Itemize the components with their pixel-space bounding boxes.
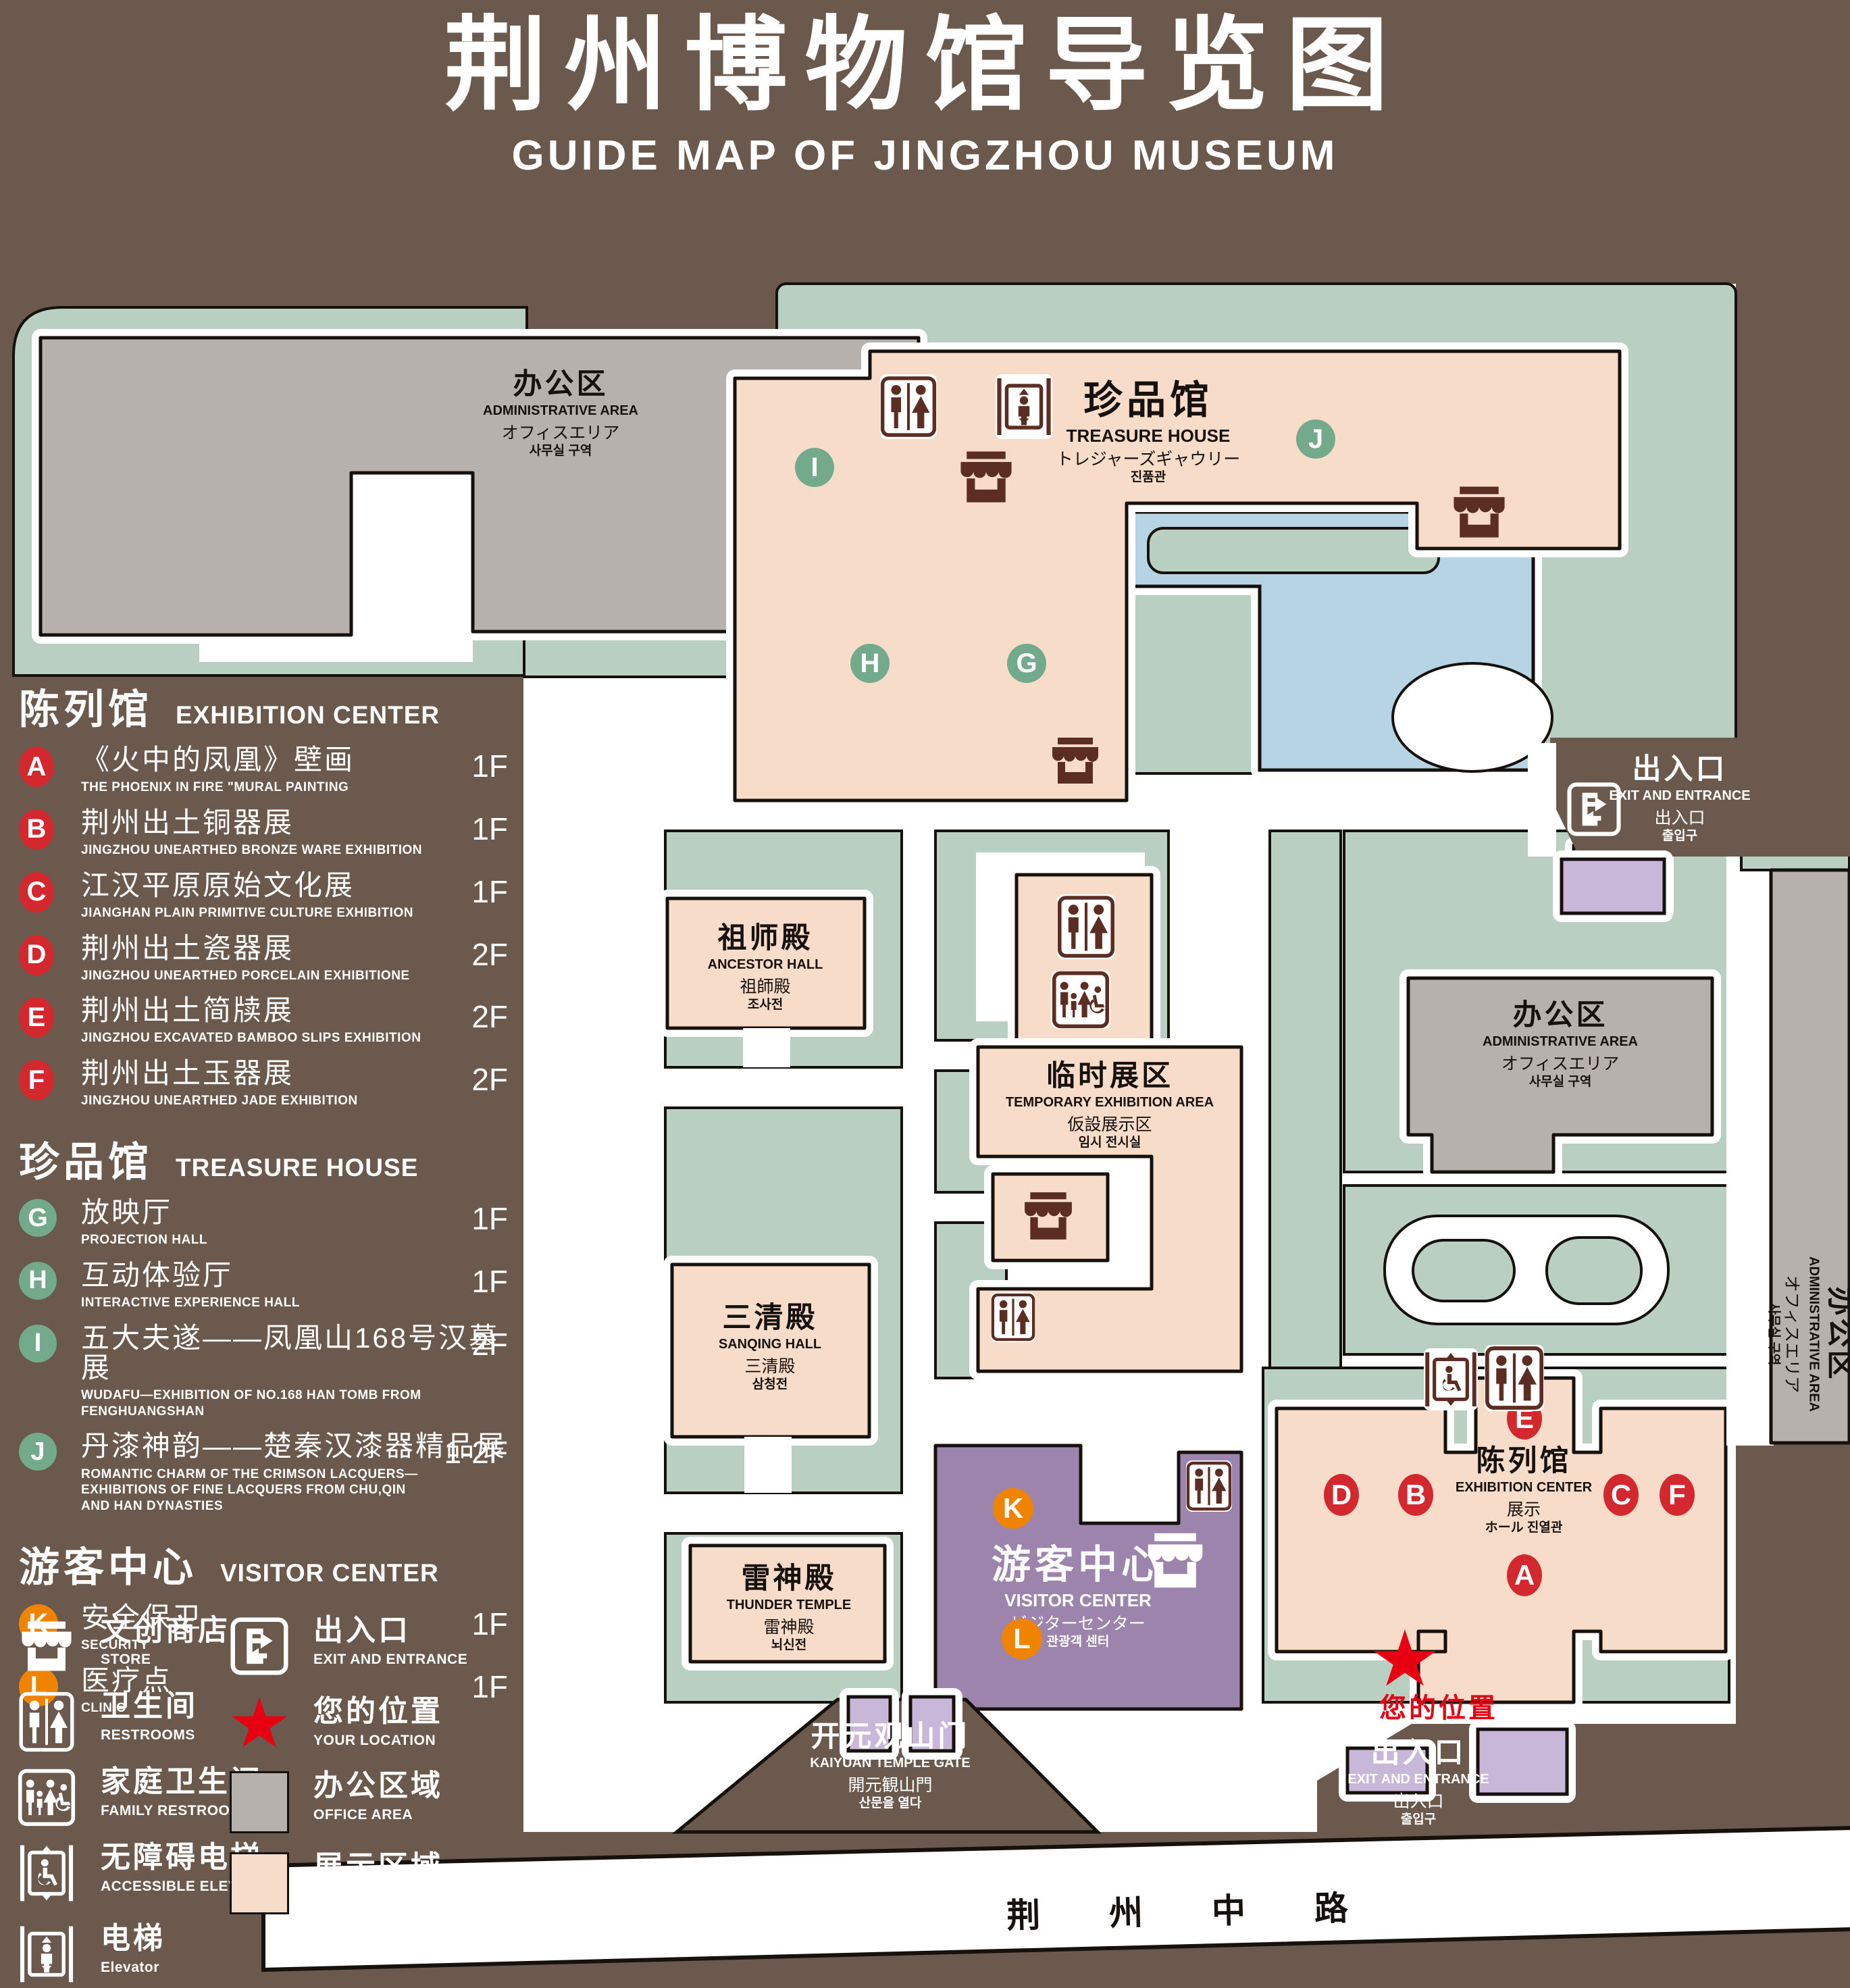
legend-item-floor: 1F <box>471 1606 508 1642</box>
legend-badge-C: C <box>19 872 54 913</box>
map-label-admin-side-line1: 办公区 <box>1824 1256 1850 1412</box>
map-marker-F: F <box>1660 1474 1695 1516</box>
legend-item-en: ROMANTIC CHARM OF THE CRIMSON LACQUERS—E… <box>81 1467 432 1514</box>
map-label-sanqing-line1: 三清殿 <box>719 1302 821 1333</box>
map-label-exit-right-line2: EXIT AND ENTRANCE <box>1609 789 1750 804</box>
legend-item-C: C江汉平原原始文化展JIANGHAN PLAIN PRIMITIVE CULTU… <box>19 871 508 921</box>
map-label-admin-right-line3: オフィスエリア <box>1483 1055 1638 1073</box>
legend-item-en: PROJECTION HALL <box>81 1232 432 1248</box>
legend-item-I: I五大夫遂——凤凰山168号汉墓展WUDAFU—EXHIBITION OF NO… <box>19 1323 508 1420</box>
store-icon <box>18 1616 76 1680</box>
map-label-admin-right-line1: 办公区 <box>1483 1000 1638 1031</box>
map-label-visitor-line1: 游客中心 <box>992 1544 1164 1587</box>
map-label-gate-line1: 开元观山门 <box>810 1721 970 1752</box>
icon-legend-zh: 办公区域 <box>313 1771 443 1801</box>
map-label-admin-right: 办公区ADMINISTRATIVE AREAオフィスエリア사무실 구역 <box>1483 1000 1638 1090</box>
pond-island <box>1148 528 1439 573</box>
accessible-icon <box>1424 1348 1478 1410</box>
legend-item-en: JIANGHAN PLAIN PRIMITIVE CULTURE EXHIBIT… <box>81 905 432 921</box>
legend-item-floor: 2F <box>471 1326 508 1362</box>
restroom-icon <box>1057 894 1115 959</box>
family-icon <box>1051 971 1110 1029</box>
map-label-exit-bottom-line2: EXIT AND ENTRANCE <box>1347 1773 1489 1787</box>
legend-item-zh: 放映厅 <box>81 1198 508 1227</box>
legend-section-header: 游客中心VISITOR CENTER <box>19 1535 508 1594</box>
legend-item-zh: 荆州出土玉器展 <box>81 1059 508 1088</box>
legend-item-A: A《火中的凤凰》壁画THE PHOENIX IN FIRE "MURAL PAI… <box>19 745 508 796</box>
legend-item-en: INTERACTIVE EXPERIENCE HALL <box>81 1295 432 1311</box>
building-exit-bottom-purple-2 <box>1478 1729 1567 1794</box>
map-marker-C: C <box>1603 1474 1639 1516</box>
map-label-ancestor: 祖师殿ANCESTOR HALL祖師殿조사전 <box>708 923 823 1013</box>
guide-map-poster: 荆州博物馆导览图 GUIDE MAP OF JINGZHOU MUSEUM <box>0 0 1850 1978</box>
map-marker-J: J <box>1296 419 1335 459</box>
map-label-admin-top: 办公区ADMINISTRATIVE AREAオフィスエリア사무실 구역 <box>483 369 638 459</box>
legend-item-floor: 1F <box>471 873 508 910</box>
map-label-exit-right: 出入口EXIT AND ENTRANCE出入口출입구 <box>1609 754 1750 844</box>
legend-badge-J: J <box>19 1433 57 1471</box>
legend-section-title-zh: 游客中心 <box>19 1535 197 1594</box>
map-marker-I: I <box>795 448 834 487</box>
restroom-icon <box>880 374 937 439</box>
map-label-exit-bottom-line4: 출입구 <box>1347 1813 1489 1827</box>
legend-badge-E: E <box>19 997 54 1038</box>
restroom-icon <box>991 1292 1035 1342</box>
map-label-thunder-line1: 雷神殿 <box>727 1563 851 1594</box>
map-label-exit-right-line4: 출입구 <box>1609 830 1750 844</box>
legend-item-zh: 《火中的凤凰》壁画 <box>81 745 508 775</box>
icon-legend-row-elevator: 电梯Elevator <box>17 1924 165 1988</box>
map-label-admin-right-line4: 사무실 구역 <box>1483 1075 1638 1090</box>
map-label-admin-side: 办公区ADMINISTRATIVE AREAオフィスエリア사무실 구역 <box>1766 1256 1850 1412</box>
legend-item-floor: 2F <box>471 998 508 1035</box>
icon-legend-en: EXIT AND ENTRANCE <box>313 1652 467 1668</box>
legend-item-floor: 1F <box>471 1668 508 1705</box>
map-label-thunder-line3: 雷神殿 <box>727 1619 851 1637</box>
icon-legend-en: DISPLAY AREA <box>313 1888 443 1904</box>
map-marker-G: G <box>1007 644 1046 683</box>
icon-legend-zh: 电梯 <box>101 1924 165 1954</box>
legend-section-title-zh: 珍品馆 <box>19 1129 153 1188</box>
legend-item-zh: 互动体验厅 <box>81 1260 508 1290</box>
icon-legend-zh: 文创商店 <box>101 1616 230 1646</box>
map-label-treasure-line4: 진품관 <box>1056 471 1241 485</box>
family-icon <box>18 1767 76 1831</box>
map-label-exhibition: 陈列馆EXHIBITION CENTER展示ホール 진열관 <box>1456 1446 1592 1535</box>
map-label-treasure: 珍品馆TREASURE HOUSEトレジャーズギャウリー진품관 <box>1056 380 1241 484</box>
map-marker-B: B <box>1398 1474 1433 1516</box>
map-label-visitor-line2: VISITOR CENTER <box>992 1591 1164 1610</box>
map-label-gate: 开元观山门KAIYUAN TEMPLE GATE開元観山門산문을 열다 <box>810 1721 970 1811</box>
map-label-thunder-line4: 뇌신전 <box>727 1639 851 1653</box>
legend-item-J: J丹漆神韵——楚秦汉漆器精品展ROMANTIC CHARM OF THE CRI… <box>19 1431 508 1514</box>
legend-item-en: WUDAFU—EXHIBITION OF NO.168 HAN TOMB FRO… <box>81 1387 432 1420</box>
store-icon <box>1448 484 1510 540</box>
legend-section-title-en: VISITOR CENTER <box>220 1559 439 1587</box>
map-label-temporary: 临时展区TEMPORARY EXHIBITION AREA仮設展示区임시 전시실 <box>1006 1061 1214 1150</box>
map-label-admin-side-line2: ADMINISTRATIVE AREA <box>1805 1256 1820 1412</box>
legend-item-zh: 五大夫遂——凤凰山168号汉墓展 <box>81 1323 508 1383</box>
icon-legend-row-office-swatch: 办公区域OFFICE AREA <box>230 1771 443 1833</box>
map-label-exit-bottom-line3: 出入口 <box>1347 1793 1489 1811</box>
map-label-treasure-line1: 珍品馆 <box>1056 380 1241 422</box>
legend-item-floor: 2F <box>471 936 508 973</box>
legend-badge-A: A <box>19 746 54 787</box>
icon-legend-en: STORE <box>101 1652 230 1668</box>
elevator-icon <box>996 374 1052 439</box>
icon-legend-en: YOUR LOCATION <box>313 1733 443 1749</box>
map-label-admin-top-line2: ADMINISTRATIVE AREA <box>483 404 638 419</box>
icon-legend-en: OFFICE AREA <box>313 1807 443 1823</box>
map-label-sanqing-line4: 삼청전 <box>719 1378 821 1392</box>
map-label-thunder-line2: THUNDER TEMPLE <box>727 1598 851 1613</box>
store-icon <box>1048 735 1103 786</box>
map-label-exit-bottom: 出入口EXIT AND ENTRANCE出入口출입구 <box>1347 1737 1489 1827</box>
legend-item-floor: 1F <box>471 748 508 784</box>
map-label-ancestor-line4: 조사전 <box>708 998 823 1013</box>
icon-legend-zh: 出入口 <box>313 1616 467 1646</box>
legend-section-title-zh: 陈列馆 <box>19 677 153 736</box>
icon-legend-row-store: 文创商店STORE <box>17 1616 230 1680</box>
icon-legend-row-family: 家庭卫生间FAMILY RESTROOMS <box>17 1767 263 1831</box>
map-label-exit-right-line1: 出入口 <box>1609 754 1750 785</box>
building-exit-right-purple <box>1562 859 1664 913</box>
restroom-icon <box>1186 1460 1232 1512</box>
icon-legend-zh: 卫生间 <box>101 1691 198 1721</box>
map-label-temporary-line1: 临时展区 <box>1006 1061 1214 1092</box>
legend-section-header: 陈列馆EXHIBITION CENTER <box>19 677 508 736</box>
legend-badge-F: F <box>19 1060 54 1100</box>
map-marker-D: D <box>1324 1474 1359 1516</box>
legend-item-D: D荆州出土瓷器展JINGZHOU UNEARTHED PORCELAIN EXH… <box>19 934 508 984</box>
map-label-exit-right-line3: 出入口 <box>1609 809 1750 827</box>
legend-badge-I: I <box>19 1325 57 1362</box>
legend-item-floor: 1F <box>471 811 508 847</box>
legend-section-title-en: TREASURE HOUSE <box>176 1154 418 1182</box>
map-label-admin-side-line3: オフィスエリア <box>1782 1256 1800 1412</box>
icon-legend-en: Elevator <box>101 1960 165 1976</box>
map-label-ancestor-line2: ANCESTOR HALL <box>708 958 823 973</box>
legend-item-zh: 荆州出土简牍展 <box>81 996 508 1025</box>
map-label-ancestor-line3: 祖師殿 <box>708 978 823 996</box>
store-icon <box>1141 1530 1209 1591</box>
legend-item-zh: 荆州出土瓷器展 <box>81 934 508 963</box>
map-label-treasure-line2: TREASURE HOUSE <box>1056 426 1241 445</box>
map-label-sanqing: 三清殿SANQING HALL三清殿삼청전 <box>719 1302 821 1392</box>
your-location-label: 您的位置 <box>1379 1686 1498 1725</box>
display-swatch-icon <box>230 1852 289 1914</box>
legend-section-title-en: EXHIBITION CENTER <box>176 701 440 730</box>
map-label-admin-right-line2: ADMINISTRATIVE AREA <box>1483 1035 1638 1050</box>
legend-item-zh: 江汉平原原始文化展 <box>81 871 508 900</box>
accessible-icon <box>18 1843 76 1907</box>
map-label-temporary-line2: TEMPORARY EXHIBITION AREA <box>1006 1096 1214 1111</box>
restroom-icon <box>1485 1345 1544 1411</box>
map-label-admin-top-line3: オフィスエリア <box>483 424 638 442</box>
map-label-exhibition-line4: ホール 진열관 <box>1456 1521 1592 1535</box>
legend-item-en: JINGZHOU UNEARTHED BRONZE WARE EXHIBITIO… <box>81 842 432 859</box>
legend-badge-D: D <box>19 935 54 975</box>
map-label-gate-line2: KAIYUAN TEMPLE GATE <box>810 1756 970 1771</box>
legend-item-B: B荆州出土铜器展JINGZHOU UNEARTHED BRONZE WARE E… <box>19 808 508 859</box>
legend-section-header: 珍品馆TREASURE HOUSE <box>19 1129 508 1188</box>
legend-item-en: JINGZHOU UNEARTHED JADE EXHIBITION <box>81 1093 432 1109</box>
map-label-exhibition-line1: 陈列馆 <box>1456 1446 1592 1477</box>
legend-item-H: H互动体验厅INTERACTIVE EXPERIENCE HALL1F <box>19 1260 508 1311</box>
legend-item-en: THE PHOENIX IN FIRE "MURAL PAINTING <box>81 780 432 796</box>
legend-item-F: F荆州出土玉器展JINGZHOU UNEARTHED JADE EXHIBITI… <box>19 1059 508 1109</box>
office-swatch-icon <box>230 1771 289 1833</box>
map-label-sanqing-line3: 三清殿 <box>719 1358 821 1376</box>
map-marker-L: L <box>1002 1619 1042 1659</box>
legend-item-floor: 2F <box>471 1061 508 1098</box>
legend-item-zh: 荆州出土铜器展 <box>81 808 508 838</box>
map-label-temporary-line4: 임시 전시실 <box>1006 1136 1214 1150</box>
legend-badge-B: B <box>19 809 54 850</box>
map-marker-A: A <box>1507 1554 1542 1596</box>
map-label-thunder: 雷神殿THUNDER TEMPLE雷神殿뇌신전 <box>727 1563 851 1653</box>
map-marker-K: K <box>993 1488 1033 1529</box>
legend-item-floor: 1F <box>471 1263 508 1300</box>
map-label-treasure-line3: トレジャーズギャウリー <box>1056 451 1241 469</box>
store-icon <box>955 449 1017 505</box>
exit-icon <box>1567 780 1621 838</box>
star-icon <box>230 1697 288 1752</box>
restroom-icon <box>18 1691 76 1756</box>
map-label-exit-bottom-line1: 出入口 <box>1347 1737 1489 1768</box>
map-label-exhibition-line2: EXHIBITION CENTER <box>1456 1481 1592 1496</box>
legend-item-E: E荆州出土简牍展JINGZHOU EXCAVATED BAMBOO SLIPS … <box>19 996 508 1046</box>
map-label-temporary-line3: 仮設展示区 <box>1006 1116 1214 1134</box>
icon-legend-en: RESTROOMS <box>101 1727 198 1743</box>
icon-legend-row-star: 您的位置YOUR LOCATION <box>230 1697 443 1752</box>
legend-item-floor: 1F <box>471 1200 508 1237</box>
icon-legend-zh: 展示区域 <box>313 1852 443 1882</box>
map-label-gate-line3: 開元観山門 <box>810 1777 970 1795</box>
map-label-admin-side-line4: 사무실 구역 <box>1766 1256 1780 1412</box>
map-label-ancestor-line1: 祖师殿 <box>708 923 823 954</box>
exit-icon <box>230 1616 288 1680</box>
legend-panel: 陈列馆EXHIBITION CENTERA《火中的凤凰》壁画THE PHOENI… <box>19 677 508 1728</box>
road-label: 荆 州 中 路 <box>1006 1881 1378 1937</box>
icon-legend-row-exit: 出入口EXIT AND ENTRANCE <box>230 1616 467 1680</box>
legend-badge-H: H <box>19 1262 57 1300</box>
elevator-icon <box>18 1924 76 1988</box>
map-marker-H: H <box>850 644 890 683</box>
store-icon <box>1020 1190 1077 1242</box>
legend-item-floor: 1-2F <box>444 1434 508 1471</box>
map-label-admin-top-line1: 办公区 <box>483 369 638 400</box>
legend-item-G: G放映厅PROJECTION HALL1F <box>19 1198 508 1248</box>
map-label-admin-top-line4: 사무실 구역 <box>483 444 638 459</box>
legend-item-en: JINGZHOU UNEARTHED PORCELAIN EXHIBITIONE <box>81 968 432 984</box>
map-label-gate-line4: 산문을 열다 <box>810 1797 970 1811</box>
map-label-sanqing-line2: SANQING HALL <box>719 1337 821 1352</box>
icon-legend-zh: 您的位置 <box>313 1697 443 1727</box>
map-label-exhibition-line3: 展示 <box>1456 1501 1592 1519</box>
icon-legend-row-restroom: 卫生间RESTROOMS <box>17 1691 198 1756</box>
legend-item-en: JINGZHOU EXCAVATED BAMBOO SLIPS EXHIBITI… <box>81 1030 432 1046</box>
icon-legend-row-display-swatch: 展示区域DISPLAY AREA <box>230 1852 443 1914</box>
legend-badge-G: G <box>19 1199 57 1237</box>
